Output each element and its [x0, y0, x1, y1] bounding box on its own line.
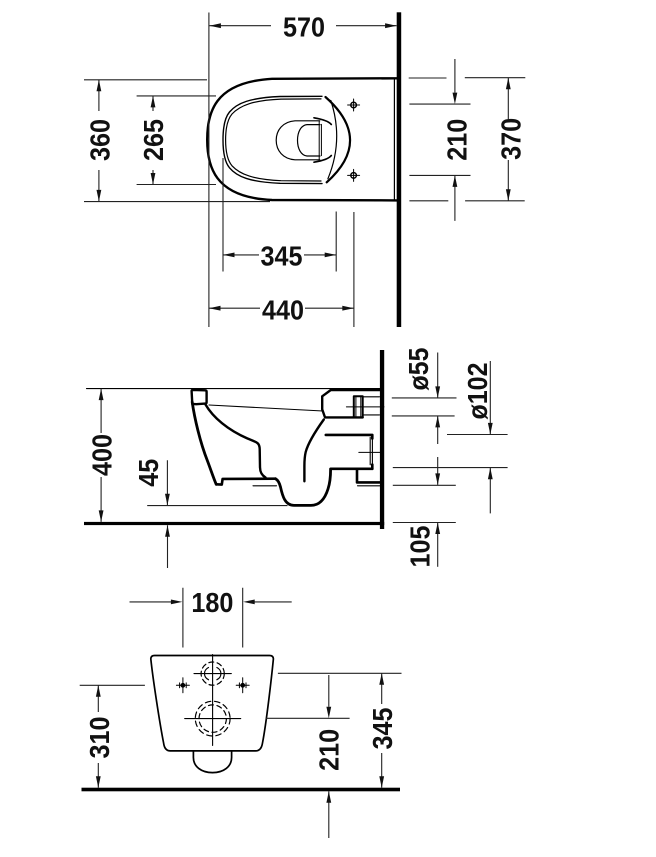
svg-text:ø102: ø102 [462, 363, 493, 420]
svg-text:360: 360 [85, 119, 116, 161]
svg-text:210: 210 [442, 119, 473, 161]
svg-text:570: 570 [283, 12, 325, 43]
svg-text:180: 180 [191, 587, 233, 618]
svg-text:265: 265 [138, 119, 169, 161]
svg-text:310: 310 [84, 717, 115, 759]
svg-text:210: 210 [313, 729, 344, 771]
svg-text:370: 370 [496, 118, 527, 160]
svg-text:105: 105 [404, 526, 435, 568]
svg-text:45: 45 [133, 459, 164, 487]
svg-text:400: 400 [87, 434, 118, 476]
svg-text:440: 440 [262, 295, 304, 326]
svg-text:345: 345 [367, 708, 398, 750]
svg-text:ø55: ø55 [403, 348, 434, 391]
svg-text:345: 345 [261, 240, 303, 271]
